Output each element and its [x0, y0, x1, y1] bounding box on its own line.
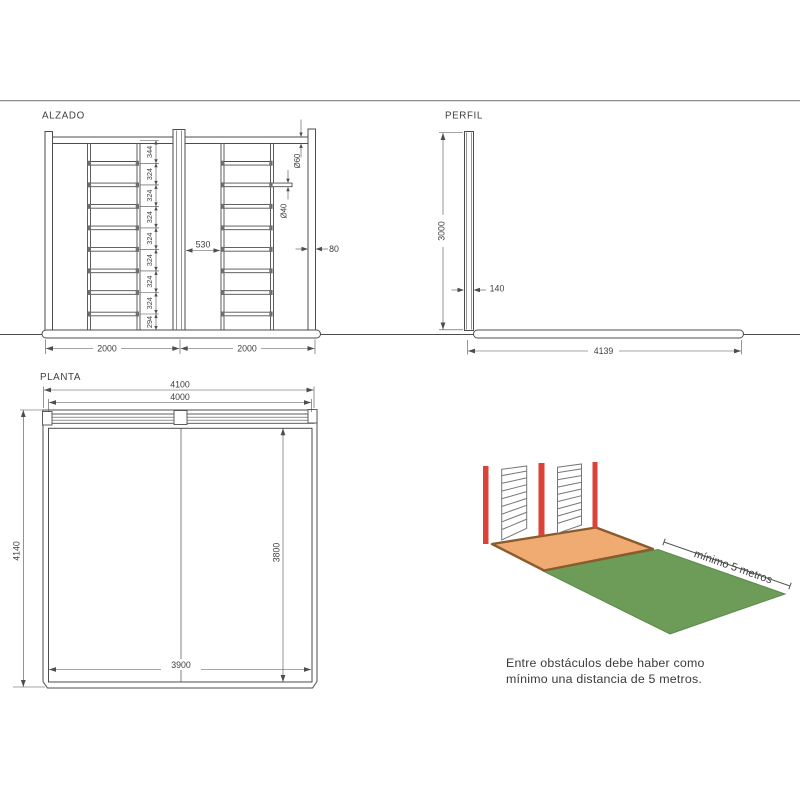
chain-dim-label: 344	[145, 146, 154, 158]
ladder-gap-label: 530	[196, 240, 211, 250]
base-length-label: 4139	[594, 346, 614, 356]
alzado-label: ALZADO	[42, 111, 85, 122]
chain-dim-label: 324	[145, 297, 154, 309]
chain-dim-label: 324	[145, 276, 154, 288]
overall-depth-dimension: 4140	[12, 410, 46, 687]
mat-width-label: 3900	[171, 660, 191, 670]
drawing-sheet: ALZADO	[0, 0, 800, 800]
chain-dim-label: 324	[145, 254, 154, 266]
profile-post	[465, 132, 474, 331]
mat-width-dimension: 3900	[49, 659, 311, 672]
post-depth-label: 140	[490, 284, 505, 294]
chain-dim-label: 294	[145, 316, 154, 328]
planta-label: PLANTA	[40, 372, 81, 383]
planta-view: PLANTA 4100 4000	[0, 360, 350, 710]
alzado-view: ALZADO	[42, 111, 339, 355]
height-dimension: 3000	[437, 133, 464, 330]
overall-width-label: 4100	[170, 380, 190, 390]
overall-depth-label: 4140	[12, 541, 22, 561]
height-label: 3000	[437, 221, 447, 241]
caption-line-2: mínimo una distancia de 5 metros.	[506, 672, 705, 688]
elevation-profile-drawing: ALZADO	[0, 100, 800, 360]
perfil-label: PERFIL	[445, 111, 483, 122]
plan-wall-strip	[43, 410, 318, 426]
mat-depth-label: 3800	[272, 543, 282, 563]
perfil-view: PERFIL 3000 140	[437, 111, 744, 356]
beam-diameter-label: Ø60	[293, 153, 302, 168]
base-length-dimension: 4139	[468, 340, 742, 356]
bay-span-dimensions: 2000 2000	[46, 340, 316, 355]
chain-dim-label: 324	[145, 168, 154, 180]
chain-dim-label: 324	[145, 233, 154, 245]
chain-dim-label: 324	[145, 211, 154, 223]
rung-diameter-label: Ø40	[280, 203, 289, 218]
caption-line-1: Entre obstáculos debe haber como	[506, 656, 705, 672]
ladder-gap-dimension: 530	[186, 240, 220, 253]
mat-depth-dimension: 3800	[272, 428, 286, 682]
bay-left-label: 2000	[97, 343, 117, 353]
ladder-rungs	[91, 162, 293, 316]
isometric-illustration: mínimo 5 metros	[440, 430, 800, 660]
post-depth-dimension: 140	[452, 284, 505, 294]
post-width-label: 80	[329, 244, 339, 254]
rung-spacing-dimension-chain: 344 324 324 324 324 324 324 324 294	[140, 141, 159, 331]
base-bar	[42, 330, 321, 338]
frame-width-label: 4000	[170, 392, 190, 402]
profile-base-bar	[474, 330, 744, 338]
rung-diameter-dimension: Ø40	[280, 170, 290, 218]
chain-dim-label: 324	[145, 190, 154, 202]
post-width-dimension: 80	[296, 244, 339, 254]
illustration-caption: Entre obstáculos debe haber como mínimo …	[506, 656, 705, 687]
vertical-posts	[45, 129, 316, 331]
bay-right-label: 2000	[237, 343, 257, 353]
frame-width-dimension: 4000	[49, 392, 312, 412]
